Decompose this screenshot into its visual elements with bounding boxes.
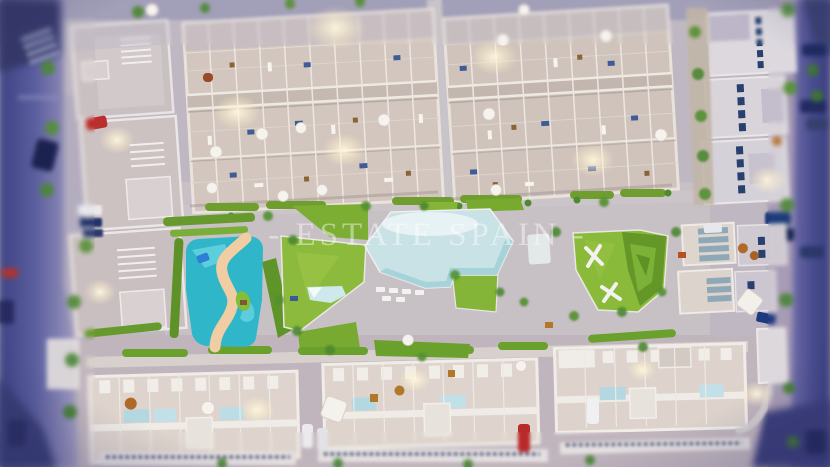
svg-text:- ESTATE SPAIN -: - ESTATE SPAIN - [268, 217, 588, 253]
